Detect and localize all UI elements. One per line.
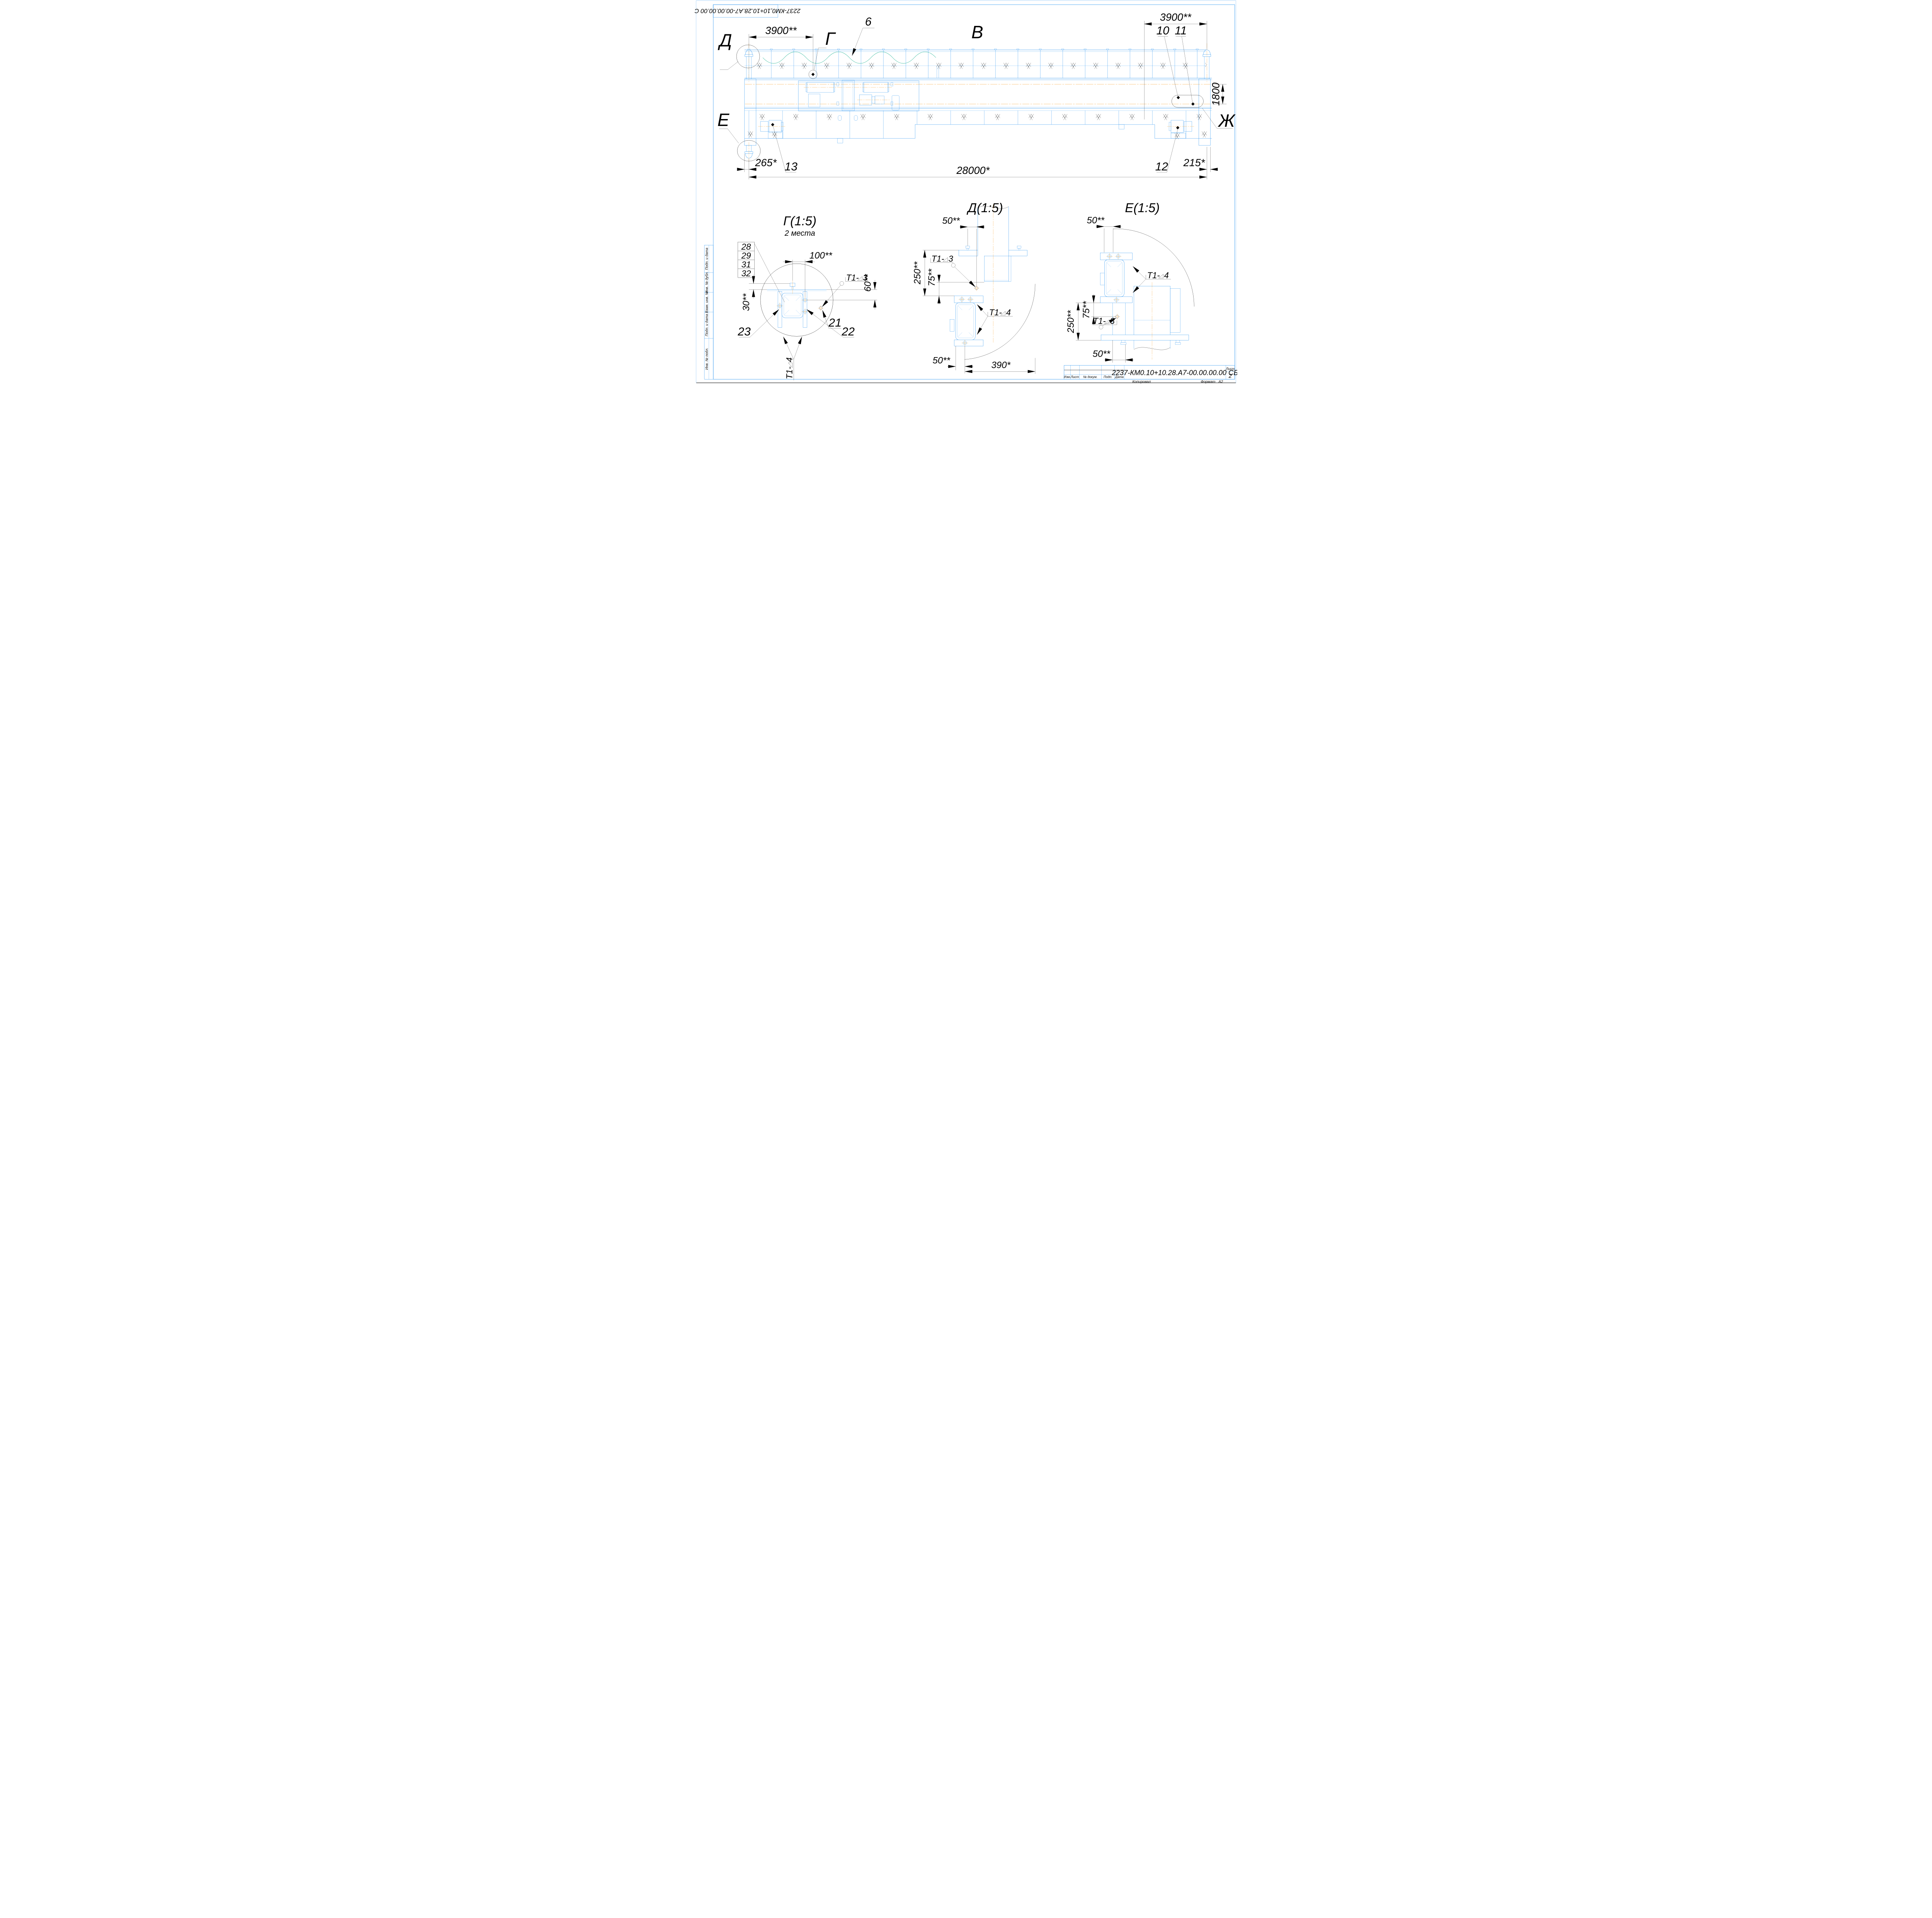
cable-stack xyxy=(808,94,820,107)
dim-d-75: 75** xyxy=(927,269,937,286)
crane-assembly-drawing: 2237-КМ0,10+10.28.А7-00.00.00.00 СБ Подп… xyxy=(695,0,1237,384)
dim-e-bottom50: 50** xyxy=(1093,349,1111,359)
detail-g-clamp xyxy=(767,281,827,327)
side-stamp-label: Подп. и дата xyxy=(705,314,709,336)
detail-e-title: Е(1:5) xyxy=(1125,201,1160,215)
detail-g-title: Г(1:5) xyxy=(783,214,816,228)
title-doc-number: 2237-КМ0.10+10.28.А7-00.00.00.00 СБ xyxy=(1111,368,1237,376)
part-29: 29 xyxy=(741,251,751,260)
callout-11: 11 xyxy=(1175,24,1187,37)
part-31: 31 xyxy=(742,260,751,269)
top-left-stamp: 2237-КМ0,10+10.28.А7-00.00.00.00 СБ xyxy=(695,5,801,17)
weld-t1-3-prefix: Т1- xyxy=(846,273,859,283)
footer-format-label: Формат xyxy=(1201,380,1215,384)
dim-e-75: 75** xyxy=(1081,301,1092,318)
weld-e-t4-value: 4 xyxy=(1164,271,1169,280)
detail-e-structure xyxy=(1100,253,1189,359)
detail-g-subtitle: 2 места xyxy=(784,229,815,238)
side-stamp-column: Подп. и дата Инв. № дубл. Взам. инв. № П… xyxy=(704,245,713,379)
detail-e: Е(1:5) xyxy=(1066,201,1194,362)
detail-g-callouts: 21 23 22 xyxy=(737,310,855,338)
weld-d-t4-value: 4 xyxy=(1006,308,1011,317)
lower-walkway xyxy=(745,111,1212,143)
weld-t1-4-value: 4 xyxy=(784,357,794,362)
title-col-list: Лист xyxy=(1070,375,1079,379)
drawing-sheet: 2237-КМ0,10+10.28.А7-00.00.00.00 СБ Подп… xyxy=(695,0,1237,384)
view-label-g: Г xyxy=(825,29,836,49)
weld-d-t3-value: 3 xyxy=(948,254,953,264)
detail-d-structure xyxy=(950,204,1027,346)
detail-g-weld-t1-3: Т1- 3 xyxy=(822,273,868,307)
detail-g: Г(1:5) 2 места 28 29 31 32 xyxy=(737,214,877,380)
callout-12: 12 xyxy=(1155,160,1168,173)
weld-d-t3-prefix: Т1- xyxy=(932,254,944,264)
title-sheet-label: Лист xyxy=(1225,367,1235,371)
weld-t1-4-prefix: Т1- xyxy=(784,366,794,379)
side-stamp-label: Инв. № подл. xyxy=(705,348,709,370)
footer-format-value: А2 xyxy=(1218,380,1223,384)
buffer-bottom-left xyxy=(745,142,753,162)
title-col-izm: Изм. xyxy=(1064,375,1071,379)
dim-215: 215* xyxy=(1183,157,1206,168)
view-label-v: В xyxy=(971,22,983,42)
detail-d-dims: 50** 250** 75** 50** 390* xyxy=(912,216,1035,374)
main-view-bridge xyxy=(736,43,1212,162)
callout-13: 13 xyxy=(784,160,798,173)
weld-t1-3-value: 3 xyxy=(863,273,868,283)
dim-d-top50: 50** xyxy=(942,216,960,226)
weld-e-t3-prefix: Т1- xyxy=(1093,316,1106,326)
callout-22: 22 xyxy=(841,325,855,338)
dim-d-250: 250** xyxy=(912,261,923,284)
dim-265: 265* xyxy=(755,157,777,168)
detail-d-weld-t1-4: Т1- 4 xyxy=(977,305,1013,335)
detail-e-weld-t1-4: Т1- 4 xyxy=(1133,266,1171,293)
view-label-d: Д xyxy=(718,30,732,50)
callout-10: 10 xyxy=(1156,24,1170,37)
weld-e-t4-prefix: Т1- xyxy=(1147,271,1160,280)
title-block: Изм. Лист № докум. Подп. Дата 2237-КМ0.1… xyxy=(1064,365,1237,384)
detail-d: Д(1:5) xyxy=(912,201,1035,374)
detail-g-weld-t1-4: Т1- 4 xyxy=(783,337,802,380)
weld-d-t4-prefix: Т1- xyxy=(989,308,1002,317)
dim-1800: 1800 xyxy=(1210,83,1221,106)
weld-e-t3-value: 3 xyxy=(1110,316,1115,326)
title-col-podp: Подп. xyxy=(1104,375,1112,379)
side-stamp-label: Взам. инв. № xyxy=(705,291,709,313)
stamp-doc-code: 2237-КМ0,10+10.28.А7-00.00.00.00 СБ xyxy=(695,7,801,14)
dim-3900-left: 3900** xyxy=(765,25,798,36)
dim-d-390: 390* xyxy=(992,360,1011,371)
detail-d-title: Д(1:5) xyxy=(966,201,1003,215)
footer-copied: Копировал xyxy=(1132,380,1151,384)
dim-100: 100** xyxy=(810,250,832,261)
girder xyxy=(745,78,1212,108)
dim-3900-right: 3900** xyxy=(1160,12,1192,23)
detail-zh-boundary xyxy=(1172,95,1203,107)
side-stamp-label: Подп. и дата xyxy=(705,248,709,270)
dim-d-bottom50: 50** xyxy=(932,355,950,366)
callout-6: 6 xyxy=(865,15,872,28)
side-stamp-label: Инв. № дубл. xyxy=(705,272,709,294)
detail-g-parts-stack: 28 29 31 32 xyxy=(738,242,785,302)
detail-e-weld-t1-3: Т1- 3 xyxy=(1092,316,1117,329)
title-col-ndocum: № докум. xyxy=(1083,375,1097,379)
dim-e-250: 250** xyxy=(1066,310,1076,333)
hoist-gearbox xyxy=(842,80,854,111)
detail-e-dims: 50** 75** 250** 50** xyxy=(1066,215,1194,362)
detail-d-weld-t1-3: Т1- 3 xyxy=(930,254,975,287)
part-28: 28 xyxy=(741,242,751,252)
dim-28000: 28000* xyxy=(956,165,990,176)
view-label-e: Е xyxy=(718,110,730,130)
main-view-annotations: В 3900** 3900** 28000* 265* 215* 1800 xyxy=(718,12,1236,180)
rail-clamps-zh xyxy=(1172,95,1203,107)
view-label-zh: Ж xyxy=(1218,111,1236,131)
callout-23: 23 xyxy=(737,325,751,338)
title-sheet-number: 2 xyxy=(1228,373,1232,379)
dim-30: 30** xyxy=(741,293,752,311)
callout-21: 21 xyxy=(828,317,841,329)
dim-e-top50: 50** xyxy=(1087,215,1105,226)
part-32: 32 xyxy=(742,269,751,278)
